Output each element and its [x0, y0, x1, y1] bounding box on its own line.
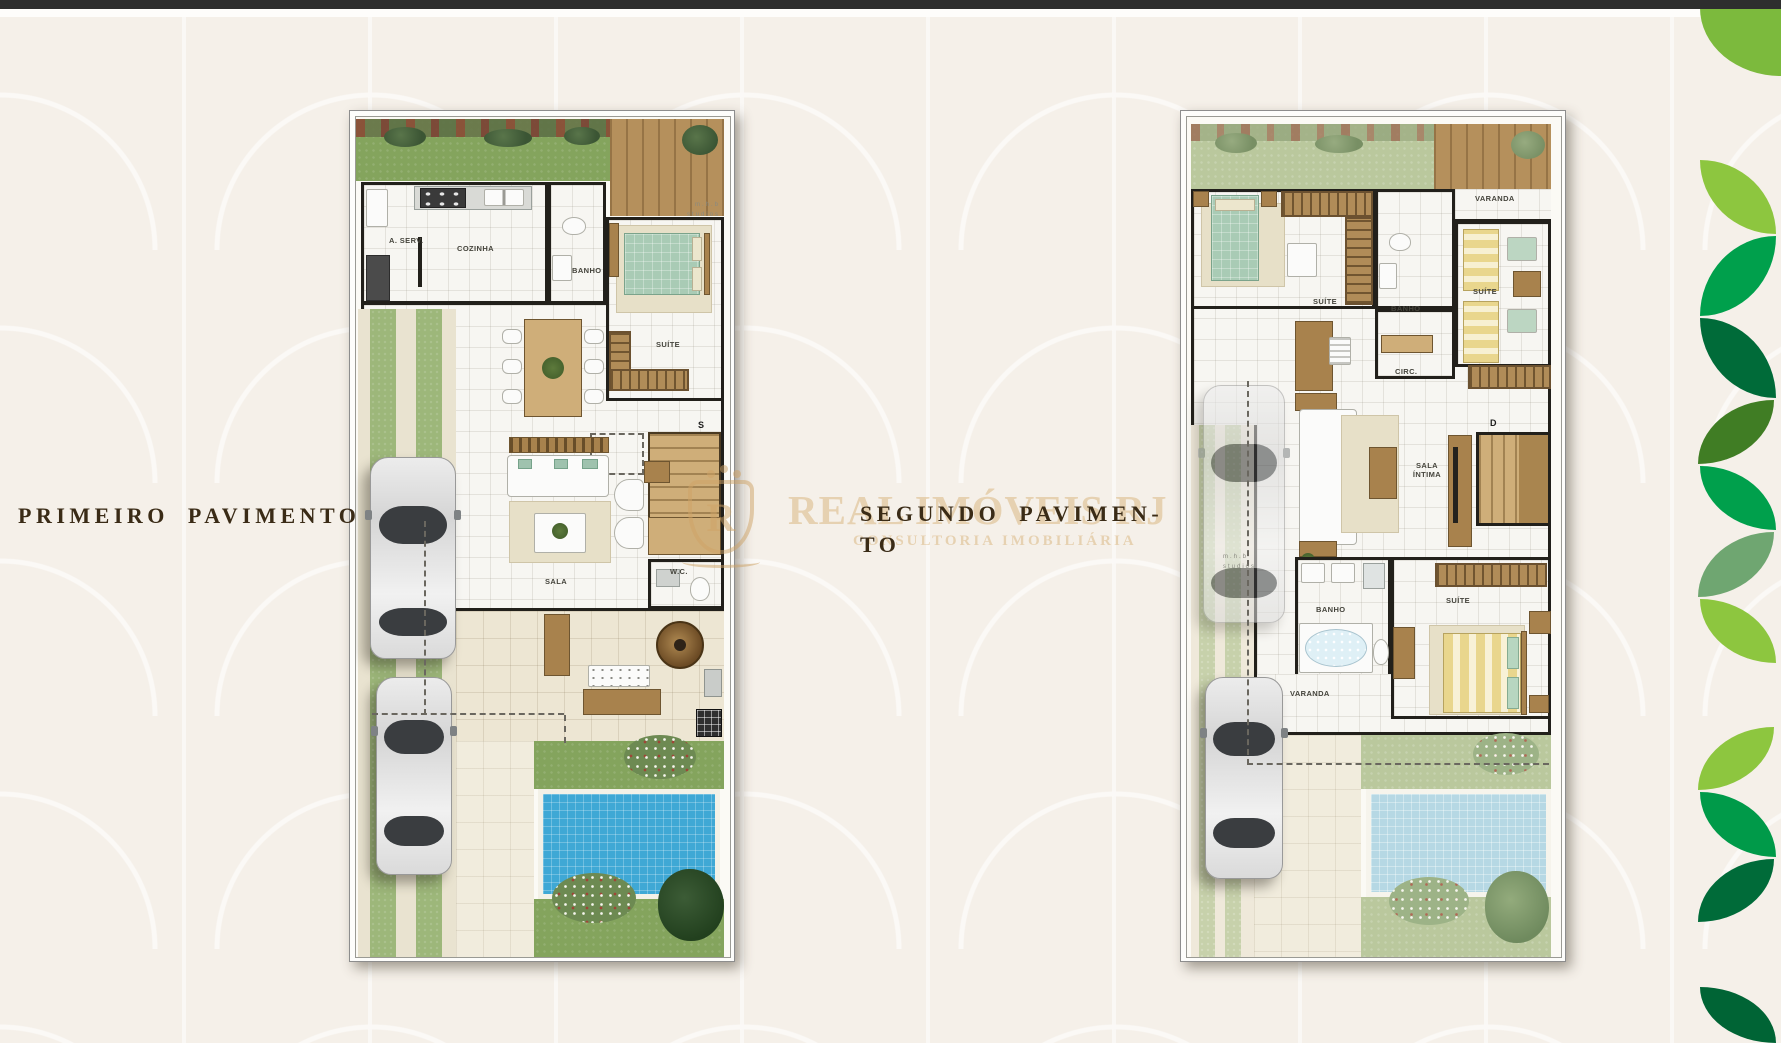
desk-chair [1329, 337, 1351, 365]
tree [658, 869, 724, 941]
projection-line [424, 521, 426, 715]
dining-chair [584, 389, 604, 404]
room-bathroom [548, 182, 606, 304]
pillow [1215, 199, 1255, 211]
pillow [692, 267, 702, 291]
bench [588, 665, 650, 687]
car-sedan [376, 677, 452, 875]
room-label-suite-bottom: SUÍTE [1446, 596, 1470, 605]
nightstand [1529, 611, 1551, 634]
shrub [1315, 135, 1363, 153]
suite-tv-panel [609, 223, 619, 277]
coffee-table [1369, 447, 1397, 499]
room-label-suite: SUÍTE [656, 340, 680, 349]
table-plant [552, 523, 568, 539]
double-bed [624, 233, 700, 295]
dining-chair [502, 329, 522, 344]
side-table [1513, 271, 1541, 297]
room-label-sala: SALA [545, 577, 567, 586]
stair-direction-marker: D [1490, 418, 1497, 428]
stairs [1476, 432, 1551, 526]
armchair [1507, 309, 1537, 333]
shrub [384, 127, 426, 147]
room-label-banho-bottom: BANHO [1316, 605, 1346, 614]
room-label-varanda-bottom: VARANDA [1290, 689, 1330, 698]
pavement [456, 741, 534, 957]
single-bed [1463, 301, 1499, 363]
nightstand [1261, 191, 1277, 207]
ottoman [1287, 243, 1317, 277]
room-label-a-serv: A. SERV. [389, 236, 423, 245]
suite-closet [609, 369, 689, 391]
flower-bush [552, 873, 636, 923]
pillow [1507, 677, 1519, 709]
flower-bush [1473, 733, 1539, 775]
terrace-table [583, 689, 661, 715]
shrub [564, 127, 600, 145]
grill-center [674, 639, 686, 651]
deck-plant [682, 125, 718, 155]
vanity-sink [1331, 563, 1355, 583]
desk [1295, 321, 1333, 391]
dining-chair [584, 329, 604, 344]
wc-toilet [690, 577, 710, 601]
shrub [1215, 133, 1257, 153]
stair-direction-marker: S [698, 420, 704, 430]
dresser [1393, 627, 1415, 679]
dining-chair [502, 389, 522, 404]
armchair [614, 517, 644, 549]
terrace-cabinet [544, 614, 570, 676]
side-table [644, 461, 670, 483]
tv-screen [1453, 447, 1458, 523]
projection-line [1247, 763, 1549, 765]
tv-panel [1448, 435, 1472, 547]
washer-dryer [366, 255, 390, 301]
first-floor-canvas: m.h.b studios [356, 117, 730, 957]
bath-sink [552, 255, 572, 281]
studio-credit-line1: m.h.b [1223, 553, 1283, 563]
toilet [562, 217, 586, 235]
flower-bush [624, 735, 696, 779]
room-label-banho-top: BANHO [1391, 304, 1421, 313]
first-floor-plan: m.h.b studios [349, 110, 735, 962]
headboard [1521, 631, 1527, 715]
flower-bush [1389, 877, 1469, 925]
room-label-varanda-top: VARANDA [1475, 194, 1515, 203]
car-suv-ghost [1203, 385, 1285, 623]
car-suv [370, 457, 456, 659]
sideboard [509, 437, 609, 453]
hall-wardrobe [1468, 365, 1551, 389]
projection-line [372, 713, 564, 715]
shrub [484, 129, 532, 147]
studio-credit-line2: studios [652, 211, 720, 221]
studio-credit: m.h.b studios [1223, 553, 1283, 572]
sofa-pillow [518, 459, 532, 469]
kitchen-sink [484, 189, 524, 206]
first-floor-title: PRIMEIRO PAVIMENTO [18, 500, 360, 531]
room-label-sala-intima: SALA ÍNTIMA [1401, 461, 1453, 479]
nightstand [1529, 695, 1549, 713]
shower [1363, 563, 1385, 589]
armchair [614, 479, 644, 511]
dining-chair [584, 359, 604, 374]
stove [420, 188, 466, 208]
second-floor-plan: D [1180, 110, 1566, 962]
room-label-cozinha: COZINHA [457, 244, 494, 253]
car-sedan [1205, 677, 1283, 879]
top-bar [0, 0, 1781, 9]
armchair [1507, 237, 1537, 261]
room-label-wc: W.C. [670, 567, 688, 576]
room-label-banho: BANHO [572, 266, 602, 275]
room-banho-top [1375, 189, 1455, 309]
terrace-sink [704, 669, 722, 697]
jacuzzi-tub [1305, 629, 1367, 667]
studio-credit-line2: studios [1223, 563, 1283, 573]
grill-grate [696, 709, 722, 737]
pillow [1507, 637, 1519, 669]
projection-line [564, 715, 566, 743]
second-floor-title-line1: SEGUNDO PAVIMEN- [860, 498, 1163, 529]
second-floor-title-line2: TO [860, 529, 1163, 560]
stairs-landing [648, 517, 721, 555]
deck-plant [1511, 131, 1545, 159]
wardrobe [1345, 217, 1373, 305]
studio-credit: m.h.b studios [652, 201, 720, 220]
hall-rug [1381, 335, 1433, 353]
page: PRIMEIRO PAVIMENTO SEGUNDO PAVIMEN- TO R… [0, 0, 1781, 1043]
wardrobe [1281, 191, 1373, 217]
fridge [366, 189, 388, 227]
table-centerpiece [542, 357, 564, 379]
top-white-band [0, 9, 1781, 17]
room-label-suite-top: SUÍTE [1313, 297, 1337, 306]
sofa-pillow [582, 459, 598, 469]
toilet [1389, 233, 1411, 251]
projection-line [1247, 381, 1249, 765]
single-bed [1463, 229, 1499, 291]
nightstand [1193, 191, 1209, 207]
second-floor-canvas: D [1187, 117, 1561, 957]
wardrobe [1435, 563, 1547, 587]
sofa-pillow [554, 459, 568, 469]
room-label-circ: CIRC. [1395, 367, 1417, 376]
pillow [692, 237, 702, 261]
second-floor-title: SEGUNDO PAVIMEN- TO [860, 498, 1163, 560]
toilet [1373, 639, 1389, 665]
dining-chair [502, 359, 522, 374]
headboard [704, 233, 710, 295]
bath-sink [1379, 263, 1397, 289]
studio-credit-line1: m.h.b [652, 201, 720, 211]
tree [1485, 871, 1549, 943]
vanity-sink [1301, 563, 1325, 583]
room-label-suite-right: SUÍTE [1473, 287, 1497, 296]
